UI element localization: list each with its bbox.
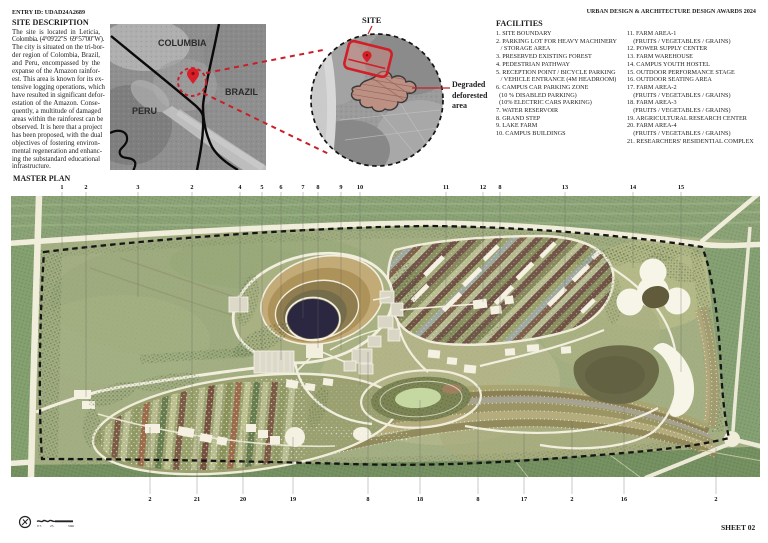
svg-text:10: 10 <box>357 184 363 191</box>
svg-text:2: 2 <box>714 496 717 503</box>
svg-text:16: 16 <box>621 496 627 503</box>
svg-text:PERU: PERU <box>132 106 157 116</box>
svg-text:13: 13 <box>562 184 568 191</box>
svg-text:12: 12 <box>480 184 486 191</box>
svg-text:19: 19 <box>290 496 296 503</box>
svg-text:8: 8 <box>366 496 369 503</box>
svg-text:1: 1 <box>60 184 63 191</box>
svg-text:17: 17 <box>521 496 527 503</box>
svg-text:8: 8 <box>316 184 319 191</box>
svg-text:20: 20 <box>240 496 246 503</box>
svg-text:8: 8 <box>476 496 479 503</box>
svg-text:50m: 50m <box>68 524 75 528</box>
svg-text:COLUMBIA: COLUMBIA <box>158 38 207 48</box>
svg-text:2: 2 <box>84 184 87 191</box>
svg-text:5: 5 <box>260 184 263 191</box>
svg-text:7: 7 <box>301 184 304 191</box>
svg-text:2: 2 <box>148 496 151 503</box>
svg-text:14: 14 <box>630 184 637 191</box>
svg-text:8: 8 <box>498 184 501 191</box>
svg-text:0 5: 0 5 <box>37 524 42 528</box>
svg-text:11: 11 <box>443 184 449 191</box>
svg-text:BRAZIL: BRAZIL <box>225 87 258 97</box>
svg-text:4: 4 <box>238 184 242 191</box>
svg-text:2: 2 <box>570 496 573 503</box>
svg-text:18: 18 <box>417 496 423 503</box>
svg-text:21: 21 <box>194 496 200 503</box>
svg-text:15: 15 <box>678 184 684 191</box>
svg-text:3: 3 <box>136 184 139 191</box>
svg-text:2: 2 <box>190 184 193 191</box>
svg-text:9: 9 <box>339 184 342 191</box>
svg-text:25: 25 <box>50 524 54 528</box>
svg-text:6: 6 <box>279 184 282 191</box>
